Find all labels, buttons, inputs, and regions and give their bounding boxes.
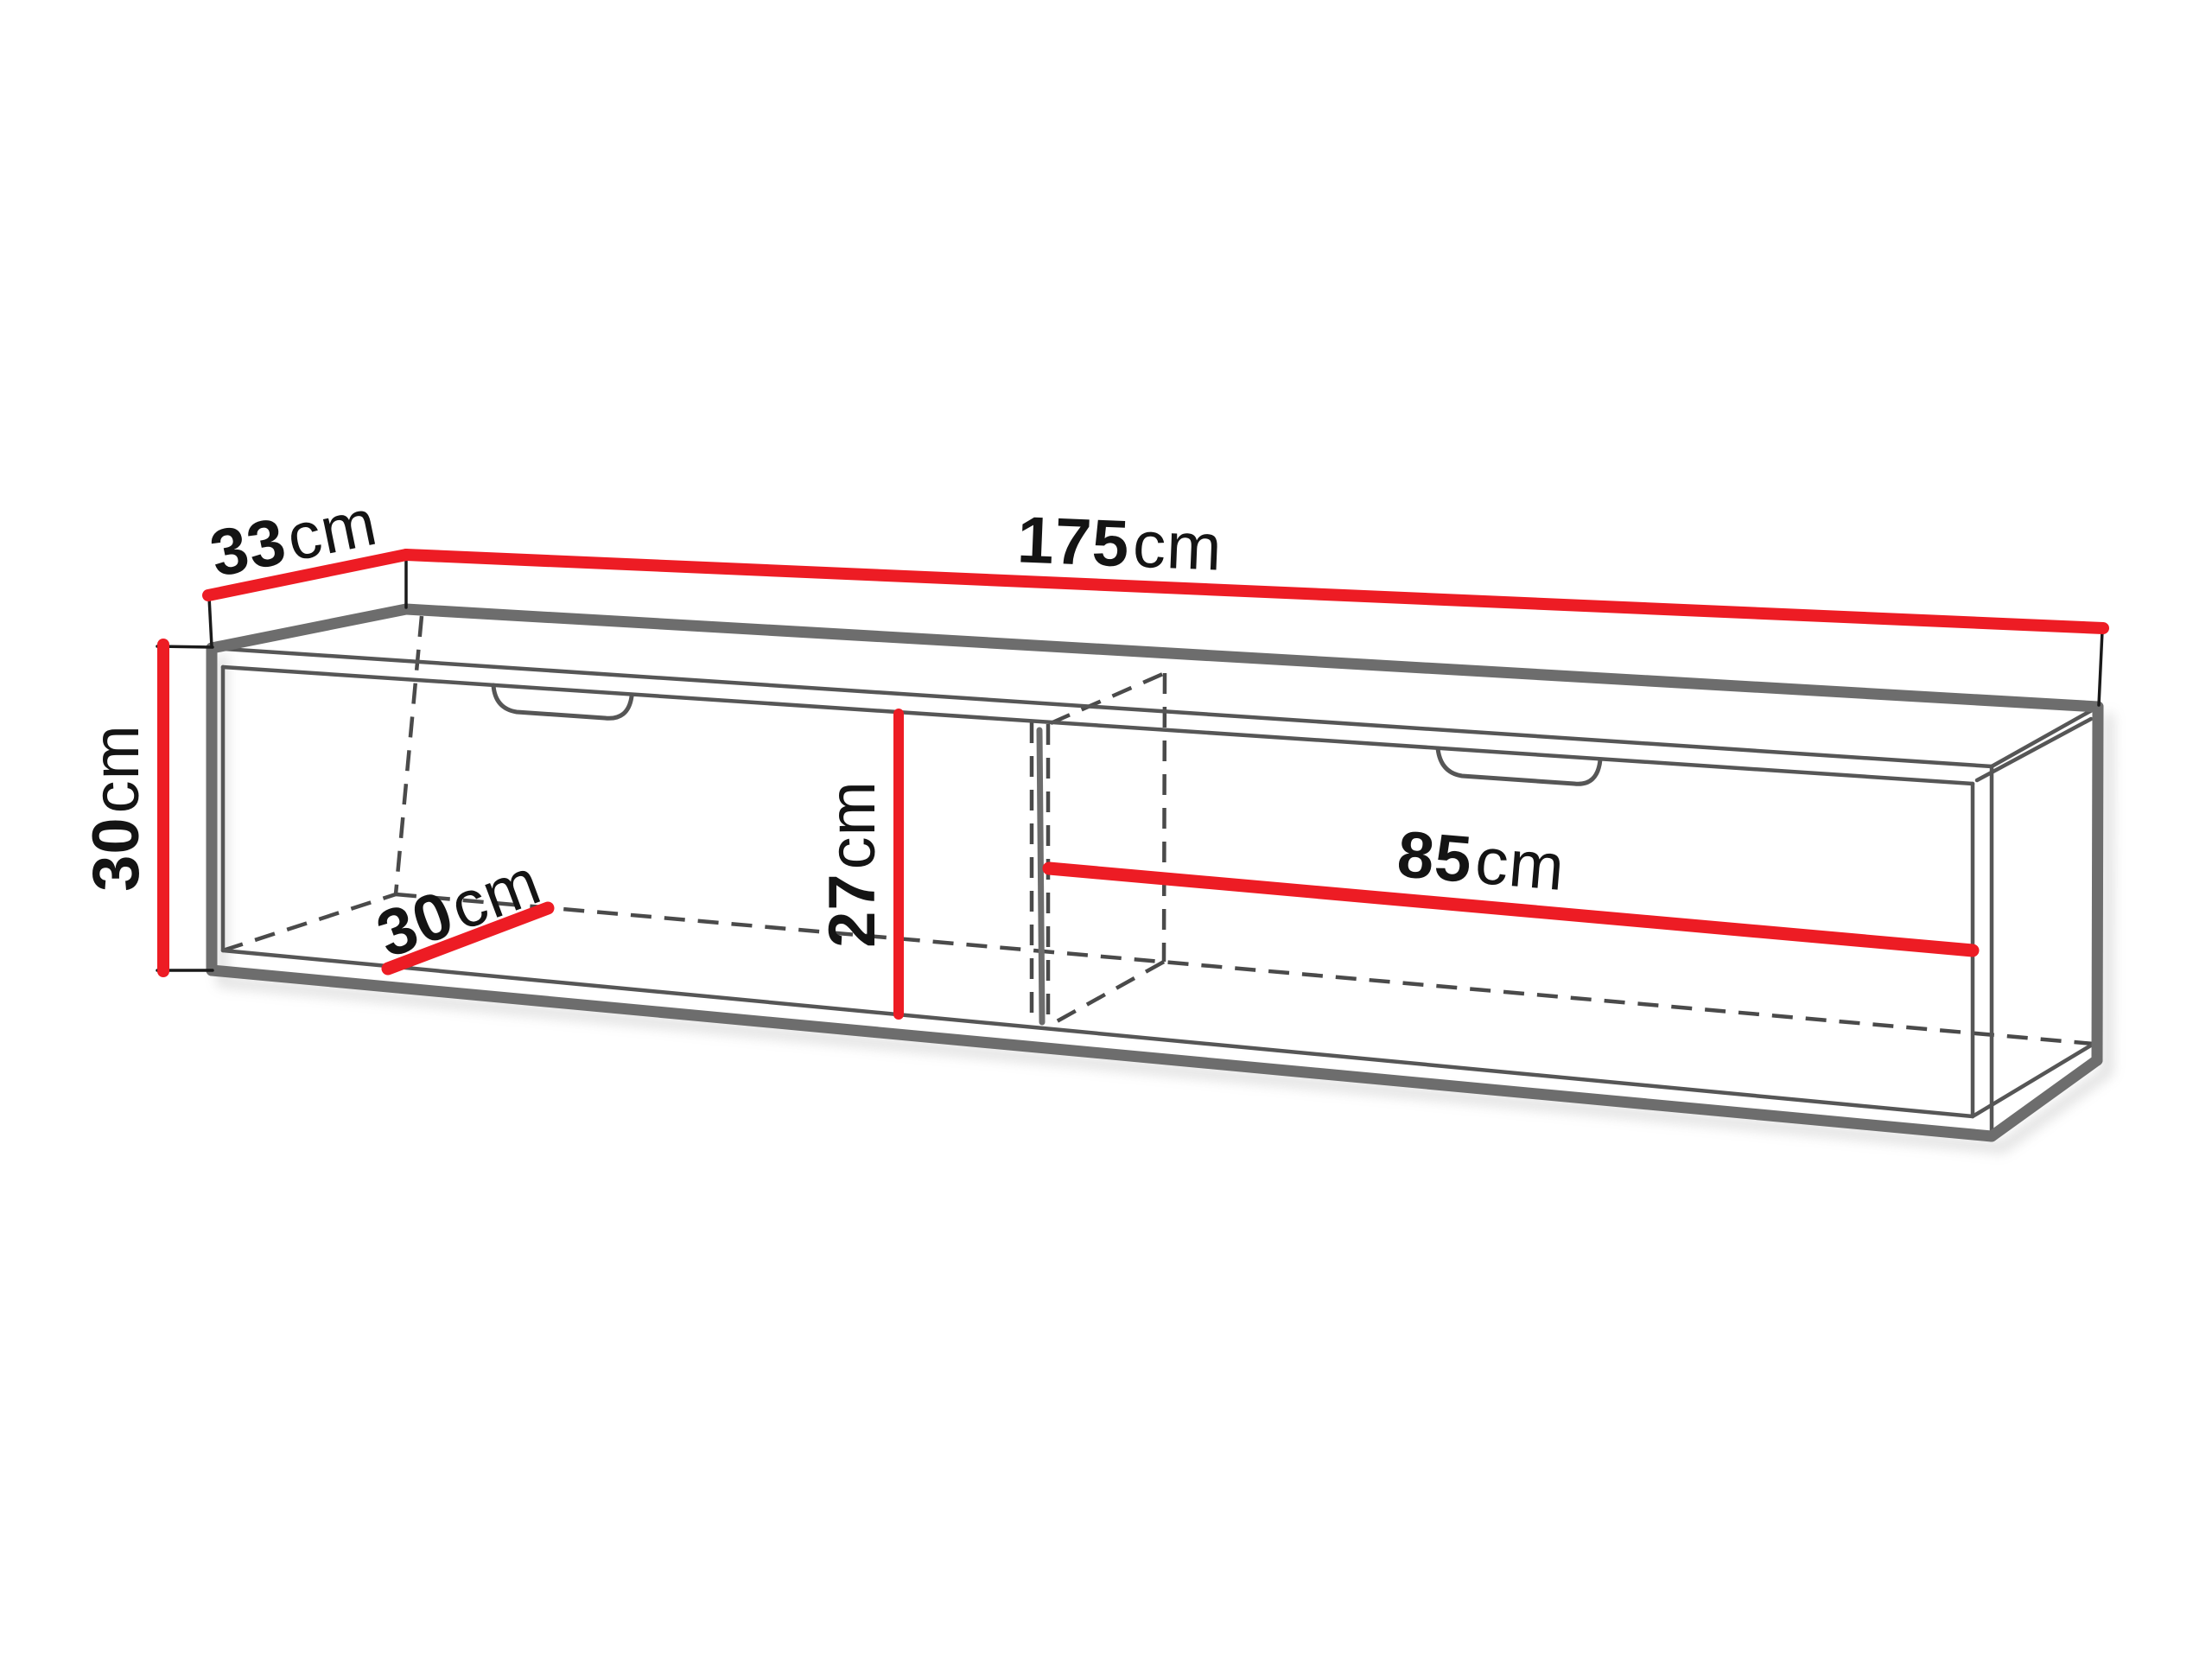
dimension-label-inner-height: 27cm — [816, 780, 889, 948]
dimension-label-width: 175cm — [1016, 503, 1224, 584]
dimension-label-inner-width: 85cm — [1395, 817, 1567, 905]
drawer-front-seam — [1039, 730, 1042, 1022]
top-face-right-inner-edge — [1977, 719, 2091, 780]
top-back-edge — [406, 609, 2098, 707]
top-face-left-edge — [212, 609, 406, 648]
diagram-page: 33cm 175cm 30cm 27cm 30cm 85cm — [0, 0, 2212, 1659]
dimension-line-width — [406, 555, 2103, 628]
dimension-label-inner-depth: 30cm — [367, 844, 550, 972]
witness-depth-front — [209, 597, 212, 646]
top-face-right-edge — [1992, 707, 2098, 766]
back-right-edge — [2097, 707, 2098, 1060]
witness-width-right — [2099, 631, 2102, 705]
partition-back-edge — [1164, 673, 1165, 962]
front-top-edge — [212, 648, 1992, 766]
cabinet-dimension-diagram: 33cm 175cm 30cm 27cm 30cm 85cm — [0, 0, 2212, 1659]
hidden-edges-dashed — [223, 616, 2094, 1044]
inner-back-left-edge — [396, 616, 422, 894]
dimension-label-height: 30cm — [79, 724, 153, 892]
floor-front-edge — [223, 950, 1973, 1116]
partition-top-edge — [1051, 673, 1165, 723]
partition-bottom-edge — [1051, 962, 1164, 1025]
